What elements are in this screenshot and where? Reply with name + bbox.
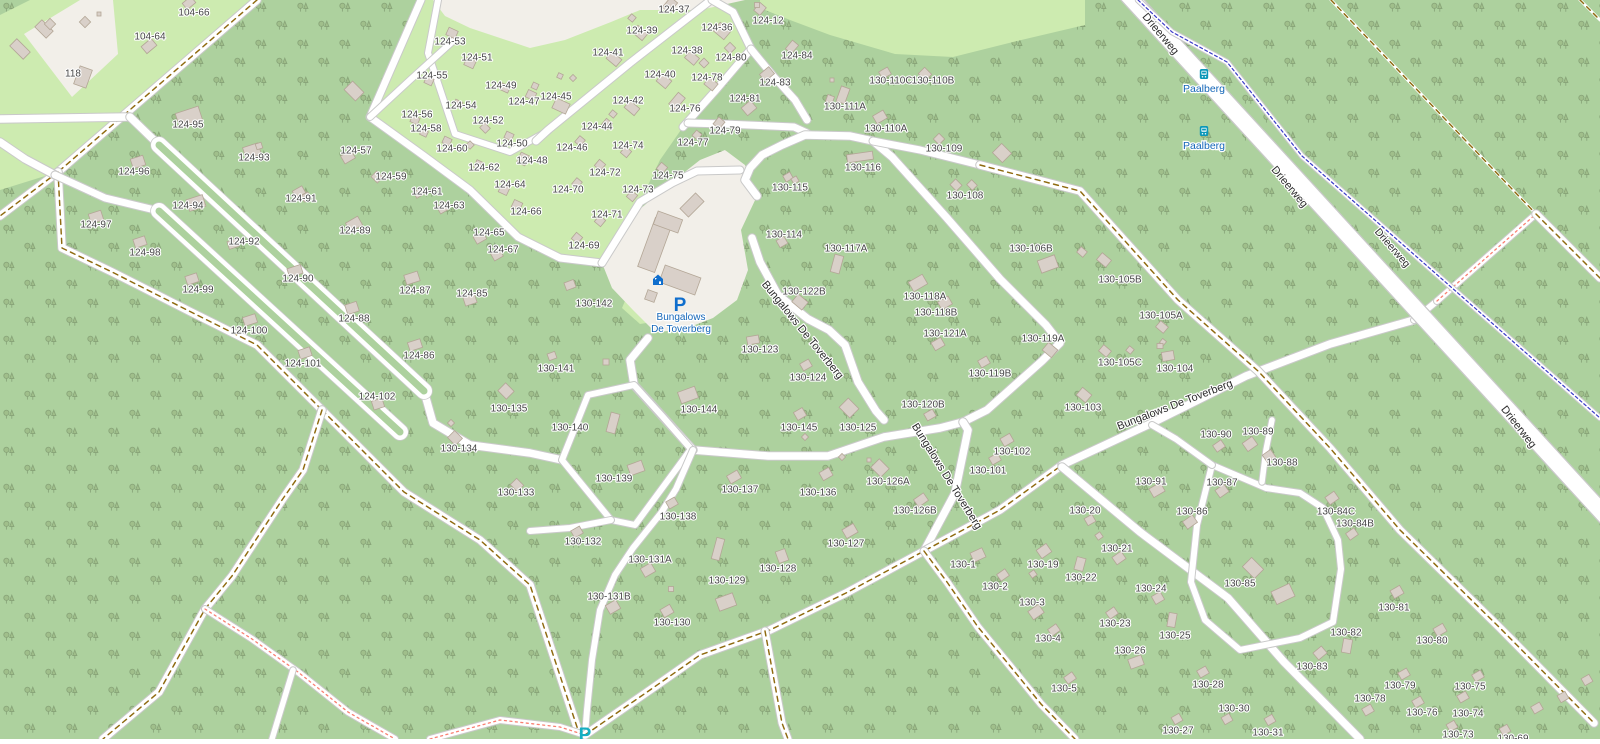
svg-text:124-39: 124-39	[626, 26, 658, 37]
svg-text:130-22: 130-22	[1065, 573, 1097, 584]
svg-text:130-128: 130-128	[760, 564, 797, 575]
svg-text:130-81: 130-81	[1378, 603, 1410, 614]
svg-text:124-91: 124-91	[285, 194, 317, 205]
svg-text:130-127: 130-127	[828, 539, 865, 550]
svg-text:De Toverberg: De Toverberg	[651, 324, 711, 335]
svg-text:124-95: 124-95	[172, 120, 204, 131]
svg-text:130-135: 130-135	[491, 404, 528, 415]
svg-text:124-81: 124-81	[729, 94, 761, 105]
svg-text:130-116: 130-116	[845, 163, 881, 174]
svg-text:124-67: 124-67	[487, 245, 519, 256]
svg-text:124-61: 124-61	[411, 187, 443, 198]
svg-text:130-126A: 130-126A	[866, 477, 910, 488]
svg-text:124-52: 124-52	[472, 116, 504, 127]
svg-text:130-31: 130-31	[1252, 728, 1284, 739]
svg-text:130-20: 130-20	[1069, 506, 1101, 517]
svg-text:130-136: 130-136	[800, 488, 837, 499]
svg-text:124-70: 124-70	[552, 185, 584, 196]
svg-text:130-89: 130-89	[1242, 427, 1274, 438]
svg-text:124-74: 124-74	[612, 141, 644, 152]
svg-text:130-78: 130-78	[1354, 694, 1386, 705]
svg-text:124-36: 124-36	[701, 23, 733, 34]
svg-text:124-96: 124-96	[118, 167, 150, 178]
svg-text:130-101: 130-101	[970, 466, 1007, 477]
svg-text:130-142: 130-142	[576, 299, 613, 310]
svg-text:130-119A: 130-119A	[1022, 334, 1065, 345]
svg-text:130-132: 130-132	[565, 537, 602, 548]
svg-text:124-47: 124-47	[508, 97, 540, 108]
svg-text:130-144: 130-144	[681, 405, 718, 416]
svg-text:130-104: 130-104	[1157, 364, 1194, 375]
svg-text:130-109: 130-109	[926, 144, 963, 155]
svg-text:130-1: 130-1	[950, 560, 976, 571]
svg-text:124-78: 124-78	[691, 73, 723, 84]
svg-text:130-102: 130-102	[994, 447, 1031, 458]
svg-text:124-77: 124-77	[677, 138, 709, 149]
svg-text:124-46: 124-46	[556, 143, 588, 154]
svg-text:130-118A: 130-118A	[904, 292, 947, 303]
svg-text:124-97: 124-97	[80, 220, 112, 231]
svg-text:130-140: 130-140	[552, 423, 589, 434]
svg-text:130-110A: 130-110A	[865, 124, 908, 135]
svg-text:124-44: 124-44	[581, 122, 613, 133]
svg-text:130-82: 130-82	[1330, 628, 1362, 639]
svg-text:130-28: 130-28	[1192, 680, 1224, 691]
svg-text:130-111A: 130-111A	[824, 102, 866, 113]
svg-text:130-3: 130-3	[1019, 598, 1045, 609]
svg-text:124-60: 124-60	[436, 144, 468, 155]
svg-text:130-5: 130-5	[1051, 684, 1077, 695]
svg-text:124-102: 124-102	[359, 392, 396, 403]
svg-text:130-131A: 130-131A	[628, 555, 672, 566]
svg-text:124-59: 124-59	[375, 172, 407, 183]
svg-text:130-138: 130-138	[660, 512, 697, 523]
svg-text:130-105A: 130-105A	[1139, 311, 1183, 322]
svg-text:130-105B: 130-105B	[1098, 275, 1142, 286]
svg-text:130-79: 130-79	[1384, 681, 1416, 692]
svg-text:124-94: 124-94	[172, 201, 204, 212]
svg-text:130-129: 130-129	[709, 576, 746, 587]
svg-text:130-85: 130-85	[1224, 579, 1256, 590]
svg-text:124-40: 124-40	[644, 70, 676, 81]
svg-text:130-84C: 130-84C	[1317, 507, 1355, 518]
svg-text:Bungalows: Bungalows	[657, 312, 706, 323]
svg-text:124-41: 124-41	[592, 48, 624, 59]
svg-text:130-124: 130-124	[790, 373, 827, 384]
svg-text:130-25: 130-25	[1159, 631, 1191, 642]
svg-text:130-21: 130-21	[1101, 544, 1133, 555]
svg-text:124-42: 124-42	[612, 96, 644, 107]
svg-text:124-84: 124-84	[781, 51, 813, 62]
svg-text:124-80: 124-80	[715, 53, 747, 64]
svg-text:130-105C: 130-105C	[1098, 358, 1142, 369]
svg-text:130-137: 130-137	[722, 485, 759, 496]
svg-text:130-73: 130-73	[1442, 730, 1474, 740]
svg-text:130-103: 130-103	[1065, 403, 1102, 414]
svg-text:124-66: 124-66	[510, 207, 542, 218]
svg-text:124-48: 124-48	[516, 156, 548, 167]
svg-text:124-57: 124-57	[340, 146, 372, 157]
svg-text:124-38: 124-38	[671, 46, 703, 57]
svg-text:130-23: 130-23	[1099, 619, 1131, 630]
svg-text:124-99: 124-99	[182, 285, 214, 296]
svg-text:124-63: 124-63	[433, 201, 465, 212]
svg-text:124-65: 124-65	[473, 228, 505, 239]
svg-text:130-130: 130-130	[654, 618, 691, 629]
svg-text:130-122B: 130-122B	[782, 287, 826, 298]
svg-text:130-118B: 130-118B	[915, 308, 958, 319]
svg-text:124-86: 124-86	[403, 351, 435, 362]
svg-text:124-75: 124-75	[652, 171, 684, 182]
svg-text:124-89: 124-89	[339, 226, 371, 237]
svg-text:130-123: 130-123	[742, 345, 779, 356]
svg-text:124-76: 124-76	[669, 104, 701, 115]
svg-text:124-64: 124-64	[494, 180, 526, 191]
svg-text:124-50: 124-50	[496, 139, 528, 150]
svg-text:124-93: 124-93	[238, 153, 270, 164]
svg-text:124-62: 124-62	[468, 163, 500, 174]
svg-text:130-87: 130-87	[1206, 478, 1238, 489]
svg-text:P: P	[579, 725, 592, 739]
svg-text:104-66: 104-66	[178, 8, 210, 19]
svg-text:130-126B: 130-126B	[893, 506, 937, 517]
svg-text:124-69: 124-69	[568, 241, 600, 252]
svg-text:130-75: 130-75	[1454, 682, 1486, 693]
svg-text:124-51: 124-51	[461, 53, 493, 64]
svg-text:124-100: 124-100	[231, 326, 268, 337]
svg-text:Paalberg: Paalberg	[1183, 140, 1225, 152]
svg-text:130-119B: 130-119B	[969, 369, 1012, 380]
svg-text:130-24: 130-24	[1135, 584, 1167, 595]
svg-text:130-110C: 130-110C	[869, 76, 912, 87]
svg-text:130-145: 130-145	[781, 423, 818, 434]
svg-text:130-27: 130-27	[1162, 726, 1194, 737]
svg-text:130-115: 130-115	[772, 183, 808, 194]
svg-text:130-108: 130-108	[947, 191, 984, 202]
svg-text:118: 118	[65, 69, 81, 80]
svg-text:130-117A: 130-117A	[825, 244, 868, 255]
svg-text:124-101: 124-101	[285, 359, 322, 370]
svg-text:130-91: 130-91	[1135, 477, 1167, 488]
svg-text:130-69: 130-69	[1497, 734, 1529, 740]
svg-text:Paalberg: Paalberg	[1183, 83, 1225, 95]
svg-text:130-134: 130-134	[441, 444, 478, 455]
svg-text:124-45: 124-45	[540, 92, 572, 103]
svg-text:130-80: 130-80	[1416, 636, 1448, 647]
svg-text:124-83: 124-83	[759, 78, 791, 89]
svg-text:130-125: 130-125	[840, 423, 877, 434]
svg-text:130-2: 130-2	[982, 582, 1008, 593]
svg-text:124-98: 124-98	[129, 248, 161, 259]
svg-text:124-71: 124-71	[591, 210, 623, 221]
svg-text:130-110B: 130-110B	[912, 76, 955, 87]
svg-text:130-120B: 130-120B	[901, 400, 945, 411]
svg-text:130-121A: 130-121A	[923, 329, 967, 340]
svg-text:124-58: 124-58	[410, 124, 442, 135]
svg-text:130-90: 130-90	[1200, 430, 1232, 441]
svg-text:124-72: 124-72	[589, 168, 621, 179]
svg-text:124-56: 124-56	[401, 110, 433, 121]
svg-text:130-84B: 130-84B	[1336, 519, 1374, 530]
svg-text:124-53: 124-53	[434, 37, 466, 48]
svg-text:130-133: 130-133	[498, 488, 535, 499]
svg-text:124-92: 124-92	[228, 237, 260, 248]
svg-text:104-64: 104-64	[134, 32, 166, 43]
svg-text:130-139: 130-139	[596, 474, 633, 485]
svg-text:130-131B: 130-131B	[587, 592, 631, 603]
svg-text:124-54: 124-54	[445, 101, 477, 112]
svg-text:124-79: 124-79	[709, 126, 741, 137]
svg-text:130-30: 130-30	[1218, 704, 1250, 715]
svg-text:124-12: 124-12	[752, 16, 784, 27]
svg-text:124-55: 124-55	[416, 71, 448, 82]
svg-text:124-85: 124-85	[456, 289, 488, 300]
svg-text:130-86: 130-86	[1176, 507, 1208, 518]
svg-text:130-88: 130-88	[1266, 458, 1298, 469]
svg-text:130-141: 130-141	[538, 364, 575, 375]
svg-text:130-106B: 130-106B	[1009, 244, 1053, 255]
svg-text:124-87: 124-87	[399, 286, 431, 297]
svg-text:130-26: 130-26	[1114, 646, 1146, 657]
svg-text:130-74: 130-74	[1452, 709, 1484, 720]
svg-text:130-114: 130-114	[766, 230, 802, 241]
svg-text:124-37: 124-37	[658, 5, 690, 16]
svg-text:130-76: 130-76	[1406, 708, 1438, 719]
svg-text:124-49: 124-49	[485, 81, 517, 92]
svg-text:130-19: 130-19	[1027, 560, 1059, 571]
svg-text:130-83: 130-83	[1296, 662, 1328, 673]
svg-text:130-4: 130-4	[1035, 634, 1061, 645]
svg-text:124-88: 124-88	[338, 314, 370, 325]
svg-text:124-90: 124-90	[282, 274, 314, 285]
svg-text:124-73: 124-73	[622, 185, 654, 196]
